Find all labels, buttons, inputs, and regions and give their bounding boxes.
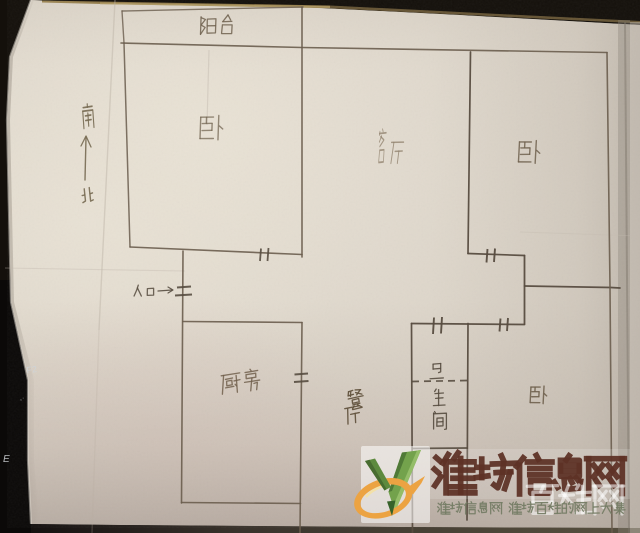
svg-text:E: E (3, 454, 10, 465)
svg-text:F2: F2 (26, 364, 38, 375)
svg-text:,·: ,· (20, 395, 24, 402)
